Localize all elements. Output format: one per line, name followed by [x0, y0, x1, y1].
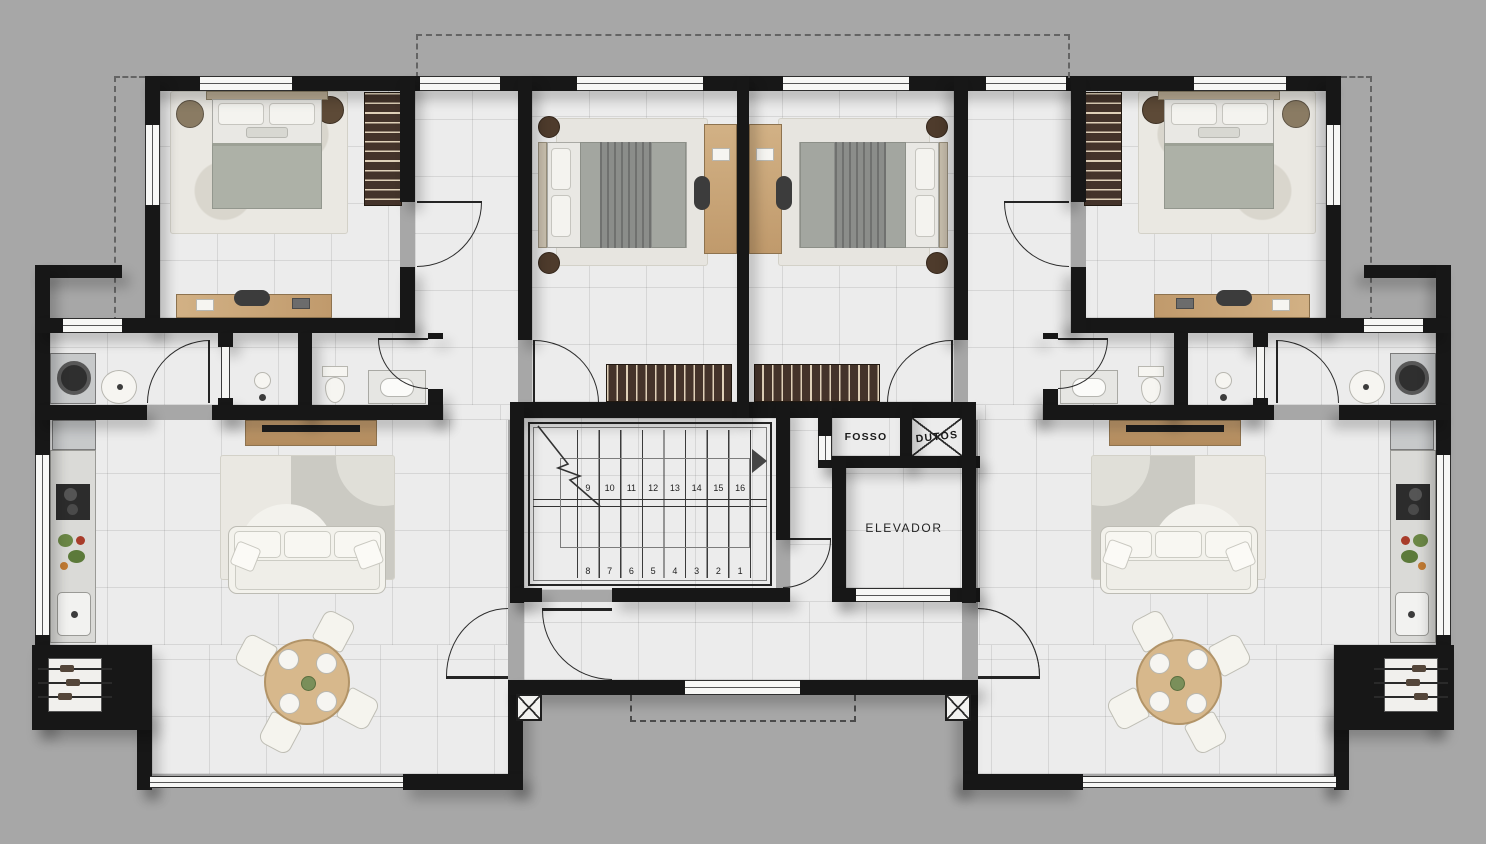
produce-tomato — [76, 536, 85, 545]
bedroom-2-bottom-wall — [518, 402, 737, 418]
laundry-divider-upper — [218, 333, 233, 347]
vestibule-door-leaf — [783, 538, 831, 540]
office-chair — [694, 176, 710, 210]
corridor-left-wall-lower — [400, 267, 415, 333]
produce-orange — [60, 562, 68, 570]
dutos-text: DUTOS — [915, 429, 959, 445]
stair-left-wall — [510, 402, 524, 603]
produce-greens — [58, 534, 73, 547]
fosso-vent — [818, 436, 832, 460]
bed-cushion — [246, 127, 288, 138]
double-bed — [547, 142, 687, 248]
tv — [262, 425, 360, 432]
corridor-left-wall-upper — [400, 76, 415, 202]
floor-plan-canvas: 9 10 11 12 13 14 15 16 8 7 6 5 4 3 2 1 F… — [0, 0, 1486, 844]
bedroom-1-door-leaf — [417, 201, 482, 203]
fridge — [52, 420, 96, 450]
bathroom-b-right-stub — [428, 333, 443, 339]
plate — [279, 693, 300, 714]
projection-dashed-line — [114, 76, 145, 333]
nightstand — [176, 100, 204, 128]
stair-bottom-wall-a — [510, 588, 542, 602]
faucet — [71, 611, 78, 618]
corridor-window — [420, 76, 500, 91]
stair-number: 6 — [621, 566, 643, 578]
stair-number: 13 — [664, 483, 686, 495]
kitchen-side-window — [35, 455, 50, 635]
stair-number: 7 — [599, 566, 621, 578]
stair-right-wall — [776, 402, 790, 540]
bedroom-2-left-wall — [518, 76, 532, 340]
stair-number: 8 — [577, 566, 599, 578]
stair-number: 4 — [664, 566, 686, 578]
fosso-label: FOSSO — [832, 418, 900, 456]
bedroom-1-side-window — [145, 125, 160, 205]
pillow — [269, 103, 315, 125]
laptop — [712, 148, 730, 161]
laundry-sink — [101, 370, 137, 404]
apartment-entry-door-leaf — [446, 676, 508, 679]
right-apartment-entry-door-leaf — [978, 676, 1040, 679]
stair-number: 1 — [729, 566, 751, 578]
barbecue-skewer — [38, 696, 112, 698]
washer-drum — [57, 361, 91, 395]
corridor-mouth-floor — [443, 405, 510, 420]
stair-number: 2 — [708, 566, 730, 578]
stair-number: 14 — [686, 483, 708, 495]
skewer-meat — [60, 665, 74, 672]
stair-number: 11 — [621, 483, 643, 495]
toilet-tank — [322, 366, 348, 377]
nightstand — [538, 116, 560, 138]
duvet — [212, 143, 322, 209]
sofa-cushion — [284, 531, 331, 558]
plate — [278, 649, 299, 670]
laundry-pocket-door — [221, 347, 230, 398]
elevator-label: ELEVADOR — [846, 468, 962, 588]
skewer-meat — [66, 679, 80, 686]
stair-bottom-wall-b — [612, 588, 790, 602]
stair-number: 12 — [642, 483, 664, 495]
tv-console — [245, 420, 377, 446]
shower-head — [254, 372, 271, 389]
fosso-text: FOSSO — [845, 431, 888, 443]
stair-break-line — [534, 424, 606, 510]
core-right-wall — [962, 402, 976, 603]
laundry-window — [63, 318, 122, 333]
nightstand — [538, 252, 560, 274]
stair-number: 5 — [642, 566, 664, 578]
laptop — [196, 299, 214, 311]
bedroom-1-window — [200, 76, 292, 91]
right-apartment-entry-door-swing — [978, 608, 1040, 676]
stair-number: 3 — [686, 566, 708, 578]
plate — [316, 653, 337, 674]
column-marker — [945, 694, 971, 721]
burner — [64, 488, 77, 501]
bath-row-bottom-wall-a — [35, 405, 147, 420]
laundry-door-leaf — [208, 340, 210, 403]
burner — [67, 504, 78, 515]
plate — [316, 691, 337, 712]
upper-projection-dashed — [416, 34, 1070, 78]
pillow — [551, 148, 571, 190]
wardrobe — [606, 364, 732, 402]
bedroom-2-window — [577, 76, 703, 91]
elevator-left-wall — [832, 456, 846, 602]
pillow — [218, 103, 264, 125]
produce-greens — [68, 550, 85, 563]
cooktop — [56, 484, 90, 520]
hall-window — [685, 680, 800, 695]
living-bottom-window — [150, 776, 403, 788]
stair-door-leaf — [542, 608, 612, 611]
bathroom-b-door-leaf — [378, 338, 428, 340]
lower-projection-dashed — [630, 695, 856, 722]
stair-number: 15 — [708, 483, 730, 495]
elevator-door — [856, 588, 950, 602]
elevator-text: ELEVADOR — [865, 521, 942, 535]
washing-machine — [50, 353, 96, 404]
center-dividing-wall — [737, 76, 749, 418]
stair-direction-arrow — [752, 449, 767, 473]
bath-row-bottom-wall-b — [212, 405, 443, 420]
column-marker — [516, 694, 542, 721]
bedroom-2-door-leaf — [533, 340, 535, 403]
bedroom-2-headboard — [538, 142, 547, 248]
shower-drain — [259, 394, 266, 401]
centerpiece-plant — [301, 676, 316, 691]
skewer-meat — [58, 693, 72, 700]
stair-number: 16 — [729, 483, 751, 495]
sofa — [228, 526, 386, 594]
stair-numbers-lower: 8 7 6 5 4 3 2 1 — [577, 566, 751, 578]
desk-books — [292, 298, 310, 309]
barbecue-skewer — [38, 668, 112, 670]
dutos-label: DUTOS — [904, 415, 970, 459]
bed-runner — [600, 142, 652, 248]
office-chair — [234, 290, 270, 306]
pillow — [551, 195, 571, 237]
wardrobe — [364, 92, 402, 206]
dining-table — [264, 639, 350, 725]
kitchen-sink — [57, 592, 91, 636]
bottom-wall-solid — [403, 774, 523, 790]
double-bed — [212, 99, 322, 209]
faucet — [117, 384, 123, 390]
